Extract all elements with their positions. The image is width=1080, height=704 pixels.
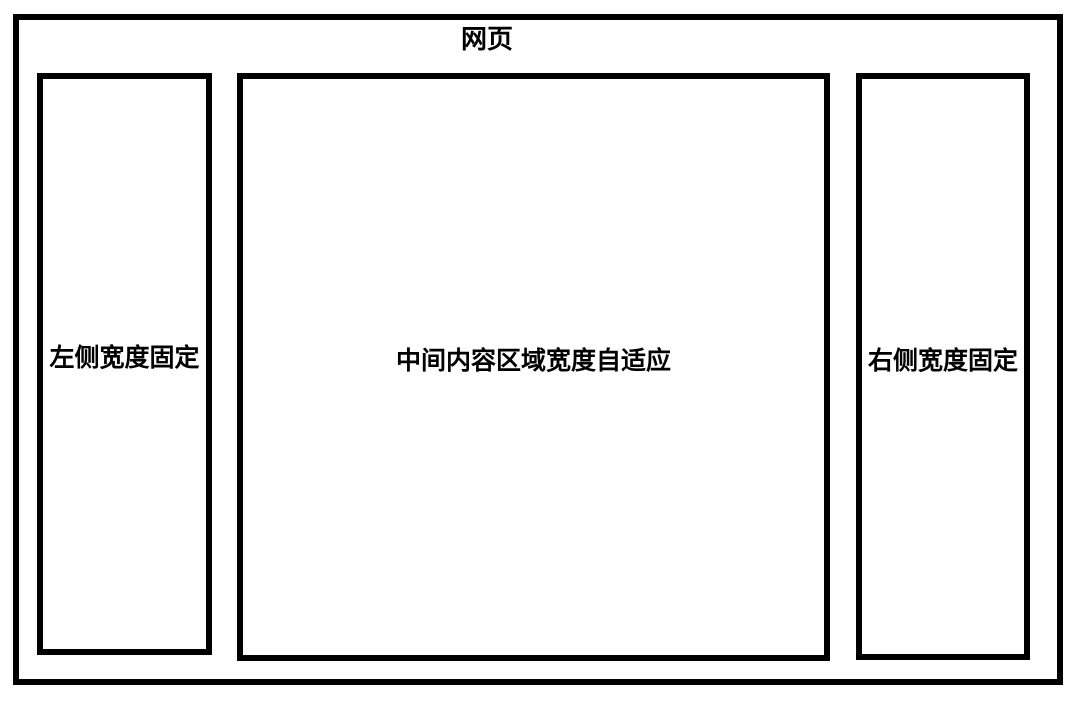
- left-column-label: 左侧宽度固定: [49, 343, 199, 373]
- center-adaptive-width-column: 中间内容区域宽度自适应: [237, 73, 830, 661]
- right-column-label: 右侧宽度固定: [868, 346, 1018, 376]
- center-column-label: 中间内容区域宽度自适应: [396, 346, 671, 376]
- page-title: 网页: [461, 26, 513, 52]
- right-fixed-width-column: 右侧宽度固定: [856, 73, 1030, 660]
- left-fixed-width-column: 左侧宽度固定: [37, 73, 212, 655]
